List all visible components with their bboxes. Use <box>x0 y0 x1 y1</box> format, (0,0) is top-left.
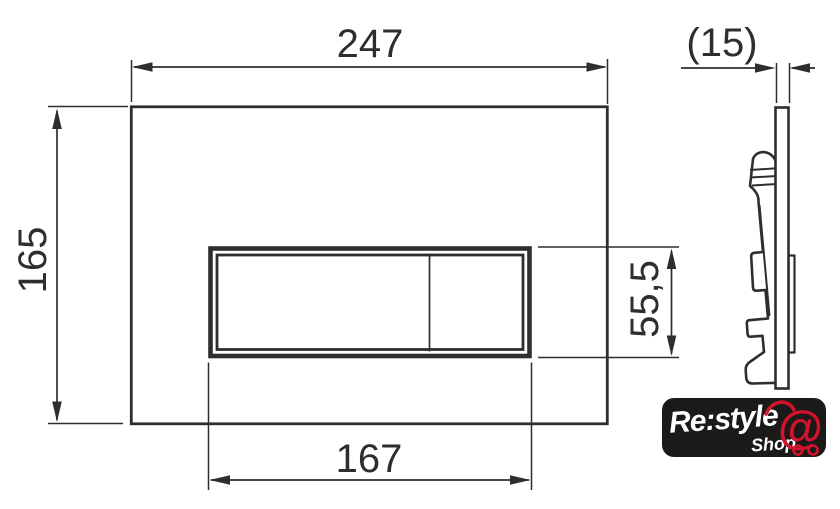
button-panel-height-label: 55,5 <box>625 260 665 338</box>
arrowhead-right <box>587 62 608 72</box>
front-view-drawing <box>131 107 607 424</box>
arrowhead-left <box>210 475 231 485</box>
arrowhead-right <box>755 63 776 73</box>
arrowhead-right <box>510 475 531 485</box>
plate-thickness-label: (15) <box>686 23 757 63</box>
dimension-plate-thickness <box>681 63 815 103</box>
plate-width-label: 247 <box>337 24 404 64</box>
side-view-drawing <box>746 108 795 389</box>
shopping-cart-at-icon: @ <box>756 396 828 462</box>
arrowhead-left <box>132 62 153 72</box>
button-panel-width-label: 167 <box>336 439 403 479</box>
technical-drawing-flush-plate: 247 165 55,5 167 (15) Re:style Shop @ <box>0 0 840 509</box>
dimension-plate-height <box>48 107 128 424</box>
arrowhead-up <box>667 249 677 270</box>
arrowhead-left <box>790 63 811 73</box>
restyle-shop-logo: Re:style Shop @ <box>662 398 826 457</box>
plate-height-label: 165 <box>13 227 53 294</box>
arrowhead-down <box>52 402 62 423</box>
button-panel-inner-frame <box>217 255 523 350</box>
mounting-bracket-profile <box>746 152 777 383</box>
arrowhead-down <box>667 336 677 357</box>
plate-side-profile <box>776 108 789 389</box>
arrowhead-up <box>52 109 62 130</box>
